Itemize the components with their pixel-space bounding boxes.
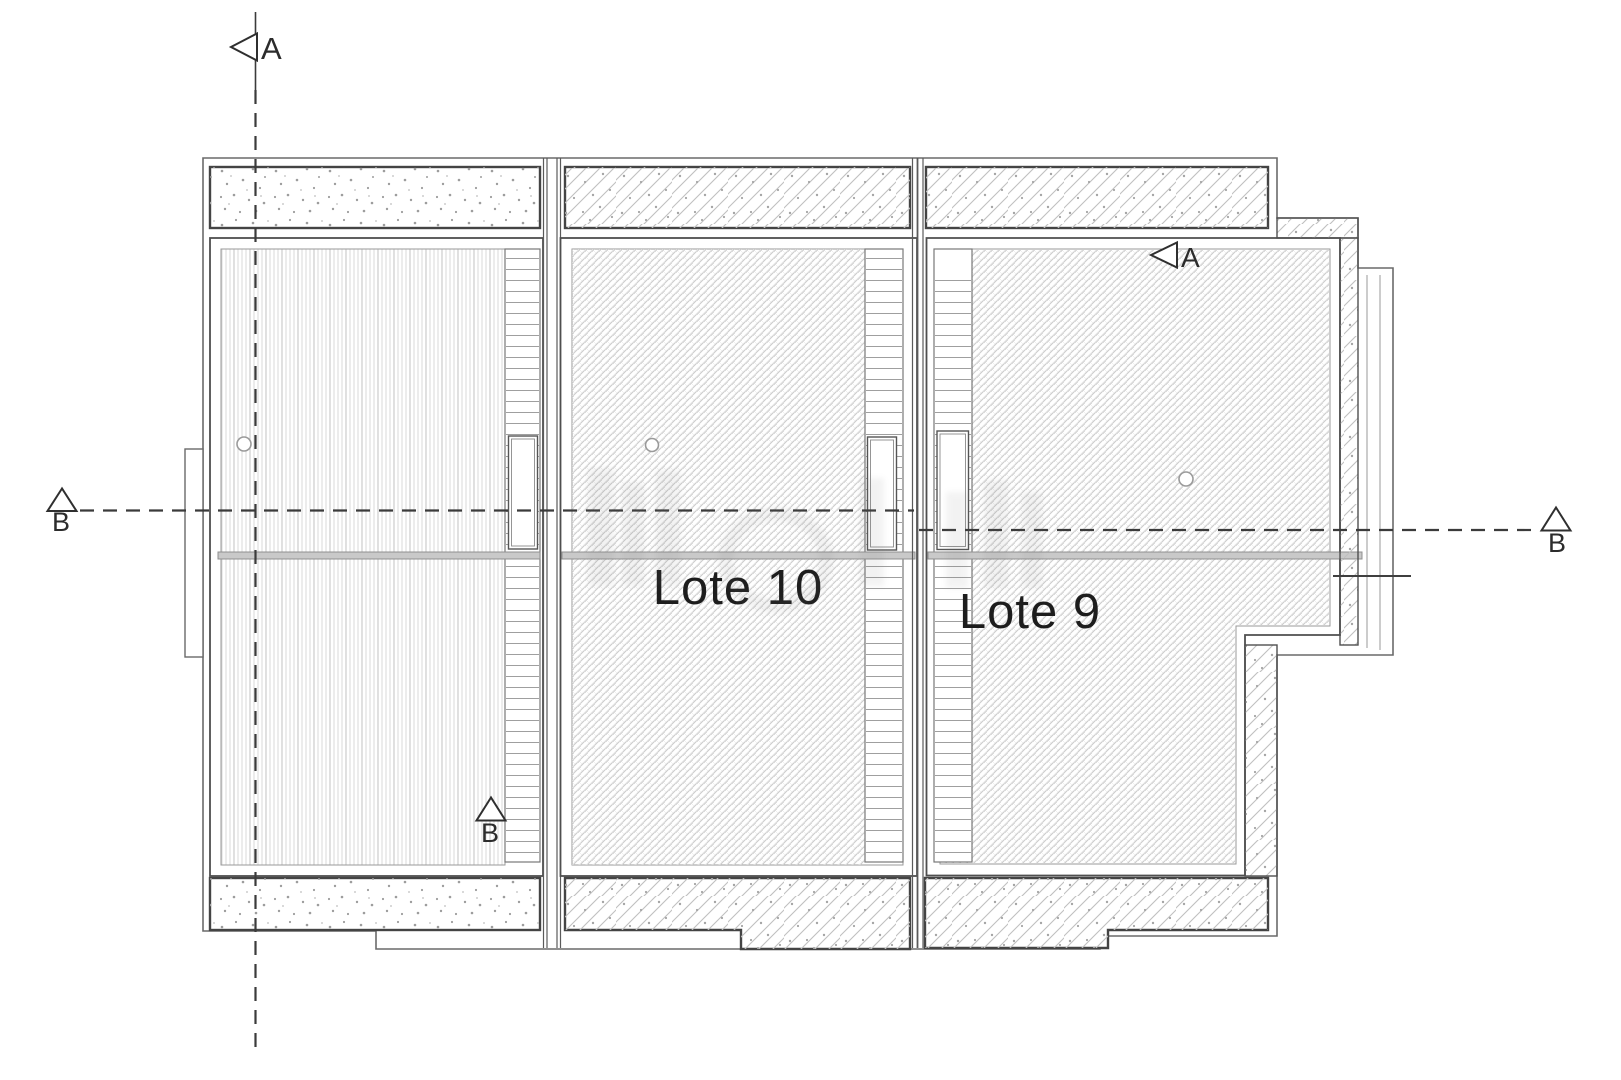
section-label-b-right: B [1548, 528, 1566, 558]
lot-label-lote9: Lote 9 [959, 585, 1101, 639]
section-label-b-left: B [52, 507, 70, 537]
unit-left-bottom-slab-texture [210, 878, 540, 930]
section-label-b-bottom: B [481, 818, 499, 848]
unit-left-top-slab-texture [210, 167, 540, 228]
unit-left-mid-band [218, 552, 540, 559]
right-projection-side-band [1340, 238, 1358, 645]
right-lower-wall-band [1245, 645, 1277, 876]
section-label-a-top: A [261, 31, 282, 66]
unit-lote10-column-circle [646, 439, 659, 452]
floor-plan-canvas: A A B B B Lote 10 Lote 9 [0, 0, 1621, 1080]
unit-left-column-circle [237, 437, 251, 451]
section-label-a-inner: A [1181, 242, 1200, 273]
unit-left [210, 238, 543, 876]
unit-lote10-top-slab-texture [565, 167, 910, 228]
left-wall-projection [185, 449, 203, 657]
right-projection-top-band [1277, 218, 1358, 238]
unit-left-door [509, 436, 538, 549]
unit-lote9-column-circle [1179, 472, 1193, 486]
unit-lote9-top-slab-texture [926, 167, 1268, 228]
